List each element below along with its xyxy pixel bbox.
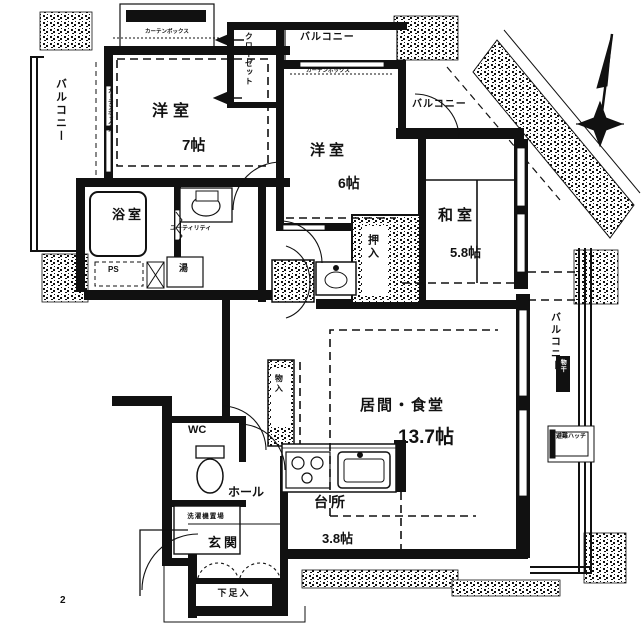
room-size-washitsu: 5.8帖 <box>450 246 481 260</box>
label-oshiire: 押入 <box>366 234 378 260</box>
escape-hatch-box <box>548 426 594 462</box>
room-label-washitsu: 和室 <box>438 208 476 224</box>
label-ps: PS <box>108 266 119 274</box>
room-size-yoshitsu6: 6帖 <box>338 176 360 191</box>
label-water-heater: 湯 <box>179 264 188 273</box>
label-curtain-box-3: カーテンボックス <box>306 69 350 75</box>
label-escape-hatch: 避難ハッチ <box>556 434 586 440</box>
floor-plan-drawing <box>0 0 642 640</box>
north-arrow-icon <box>576 34 624 146</box>
bathtub-icon <box>90 192 146 256</box>
room-size-kitchen: 3.8帖 <box>322 532 353 546</box>
vanity2-icon <box>316 262 356 295</box>
room-label-wc: WC <box>188 425 206 437</box>
label-shoe-box: 下足入 <box>198 589 270 598</box>
room-label-bath: 浴室 <box>112 208 144 222</box>
toilet-icon <box>196 446 224 493</box>
label-balcony-left: バルコニー <box>54 78 66 143</box>
page-number: 2 <box>60 596 66 607</box>
label-monoire: 物入 <box>274 374 282 394</box>
label-balcony-right: バルコニー <box>548 312 559 372</box>
label-closet: クローゼット <box>244 32 252 104</box>
label-monohoshi: 物干 <box>559 359 565 373</box>
meter-box <box>147 262 164 288</box>
label-balcony-top: バルコニー <box>300 33 355 44</box>
walls <box>76 22 530 618</box>
top-bay-bar <box>126 10 206 22</box>
label-curtain-box-1: カーテンボックス <box>145 30 189 36</box>
oshiire-box <box>352 215 420 303</box>
room-label-kitchen: 台所 <box>314 495 348 510</box>
room-label-utility: ユーティリティ <box>170 226 211 232</box>
room-size-yoshitsu7: 7帖 <box>182 138 205 154</box>
floor-plan: 洋室 7帖 洋室 6帖 和室 5.8帖 居間・食堂 13.7帖 台所 3.8帖 … <box>0 0 642 640</box>
label-laundry: 洗濯機置場 <box>180 514 232 521</box>
room-label-living: 居間・食堂 <box>360 398 445 414</box>
room-label-entrance: 玄関 <box>208 536 240 550</box>
tatami-lines <box>426 180 514 283</box>
room-size-living: 13.7帖 <box>398 428 454 448</box>
label-curtain-box-2: カーテンボックス <box>106 88 112 152</box>
label-balcony-upper-right: バルコニー <box>412 100 467 111</box>
monoire-box <box>268 360 294 446</box>
ps-box <box>95 262 143 286</box>
sink-icon <box>338 452 390 488</box>
stove-icon <box>286 452 330 488</box>
room-label-hall: ホール <box>228 486 264 499</box>
room-label-yoshitsu7: 洋室 <box>152 104 194 121</box>
room-label-yoshitsu6: 洋室 <box>310 143 348 159</box>
vanity-icon <box>180 188 232 222</box>
